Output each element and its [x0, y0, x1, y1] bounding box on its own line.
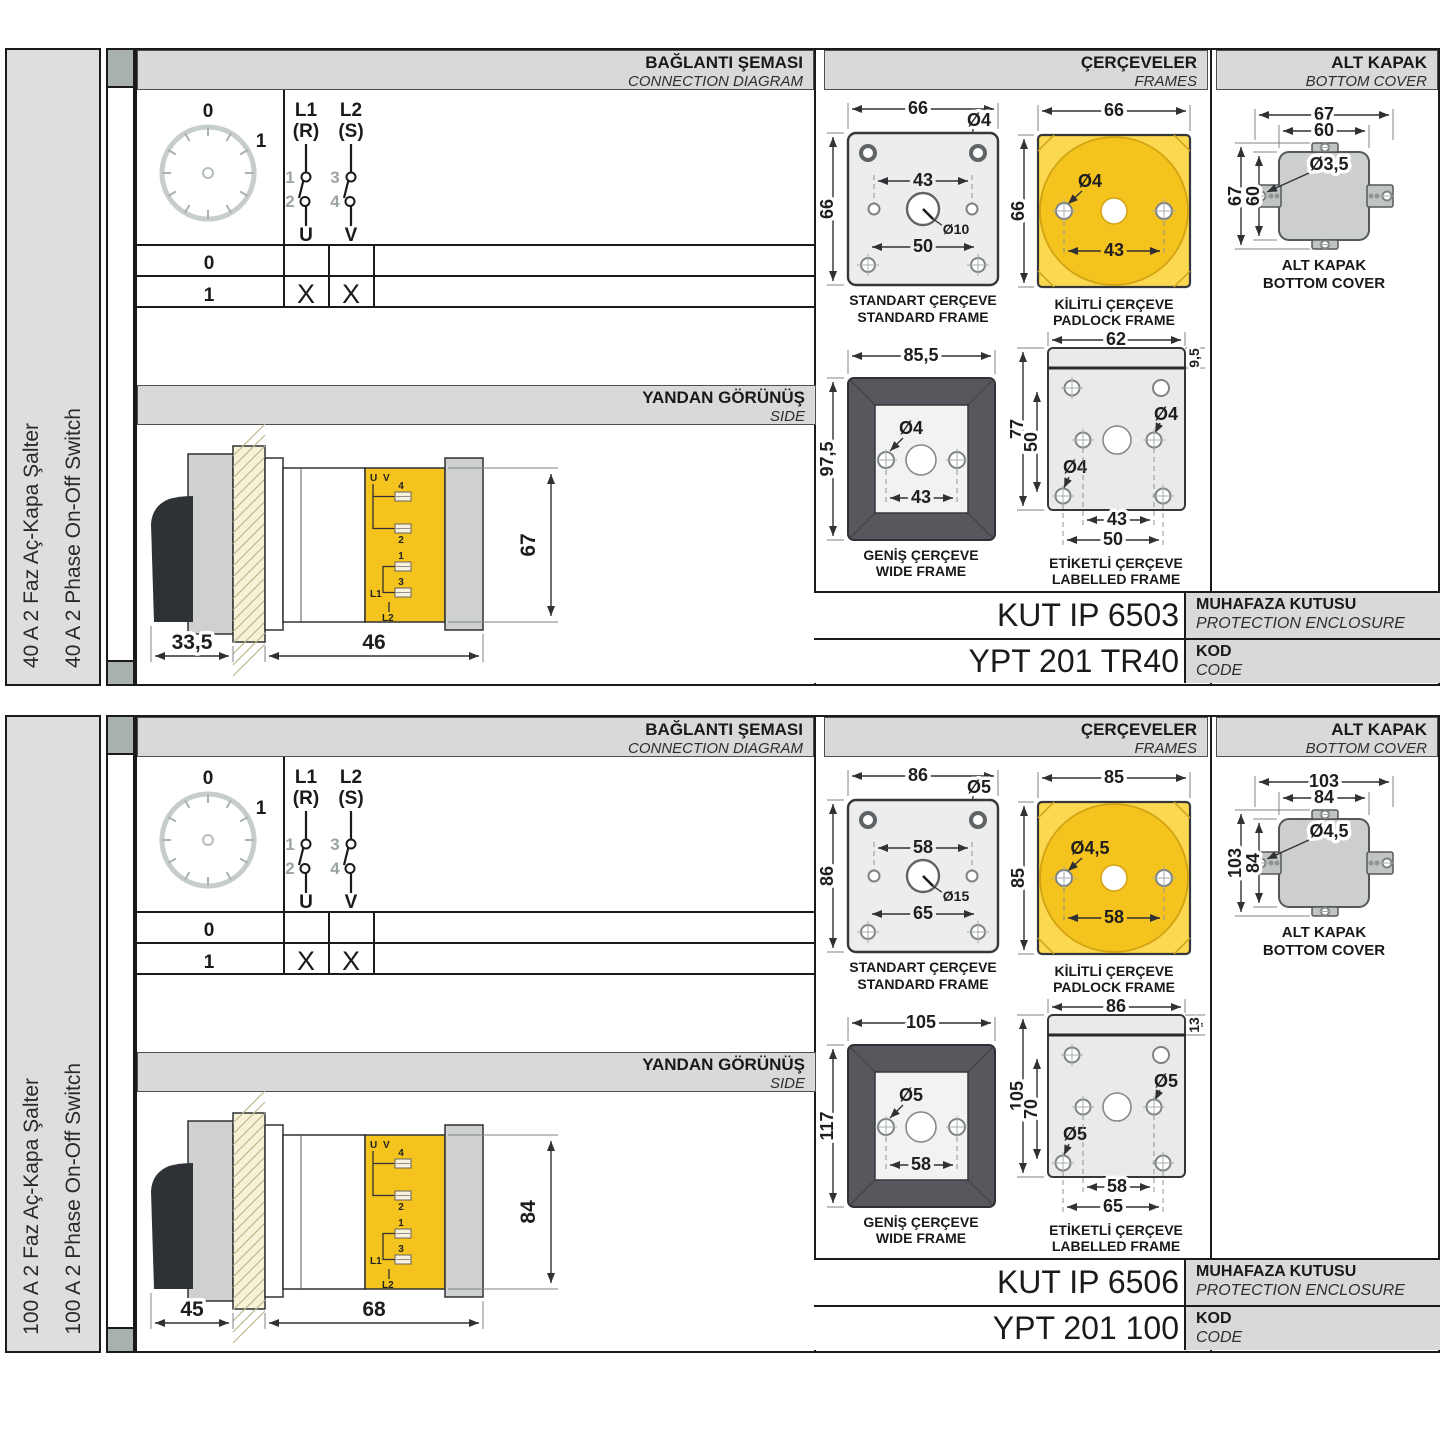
- std-height: 66: [817, 199, 837, 219]
- pad-caption-en: PADLOCK FRAME: [1053, 979, 1175, 995]
- dial-position-1: 1: [256, 798, 267, 819]
- wide-spacing: 58: [911, 1154, 931, 1174]
- enclosure-label: MUHAFAZA KUTUSU PROTECTION ENCLOSURE: [1184, 1260, 1440, 1305]
- wide-width: 105: [906, 1012, 936, 1032]
- terminal-u-label: U: [299, 892, 313, 913]
- switch-handle: [151, 496, 193, 622]
- dial-position-1: 1: [256, 131, 267, 152]
- dim-front-depth: 33,5: [172, 631, 213, 654]
- cover-inner-w: 84: [1314, 787, 1334, 807]
- product-code: YPT 201 TR40: [814, 640, 1184, 683]
- code-label-tr: KOD: [1196, 642, 1440, 661]
- header-connection-en: CONNECTION DIAGRAM: [138, 740, 803, 757]
- sv-l1: L1: [370, 1256, 382, 1267]
- sv-t2: 2: [398, 535, 404, 546]
- labelled-frame-drawing: 86 13 Ø5 Ø5 105: [1013, 997, 1209, 1255]
- contact-1-label: 1: [285, 168, 294, 187]
- pole1-line-label: L1: [295, 100, 318, 121]
- terminal-u-label: U: [299, 225, 313, 246]
- cover-dims-top: 67 60: [1255, 104, 1393, 148]
- lab-width: 86: [1106, 996, 1126, 1016]
- std-hole: Ø5: [967, 777, 991, 797]
- product-code: YPT 201 100: [814, 1307, 1184, 1350]
- wide-caption-tr: GENİŞ ÇERÇEVE: [863, 547, 978, 563]
- side-view-drawing: U V 4 2 1 3 L1 L2 84: [143, 1103, 593, 1343]
- table-x-v: X: [342, 279, 360, 309]
- product-section-1: 40 A 2 Faz Aç-Kapa Şalter 40 A 2 Phase O…: [0, 48, 1445, 686]
- product-code-label: KOD CODE: [1184, 640, 1440, 683]
- lab-lower-spacing: 65: [1103, 1196, 1123, 1216]
- lab-caption-en: LABELLED FRAME: [1052, 1238, 1180, 1254]
- table-x-u: X: [297, 279, 315, 309]
- product-name-turkish: 40 A 2 Faz Aç-Kapa Şalter: [20, 423, 44, 668]
- contact-2-label: 2: [285, 859, 294, 878]
- lab-lower-spacing: 50: [1103, 529, 1123, 549]
- pole2-phase-label: (S): [338, 788, 363, 809]
- table-x-u: X: [297, 946, 315, 976]
- pad-hole: Ø4: [1078, 171, 1102, 191]
- std-shaft: Ø10: [943, 221, 970, 237]
- product-name-english: 40 A 2 Phase On-Off Switch: [62, 408, 86, 668]
- wide-dims-top: 85,5: [848, 345, 995, 374]
- connection-diagram: 0 1 L1 (R) 1 2 U L2 (S): [135, 90, 816, 308]
- dim-rear-depth: 46: [362, 631, 385, 654]
- wide-spacing: 43: [911, 487, 931, 507]
- lab-hole-top: Ø5: [1154, 1071, 1178, 1091]
- header-connection-tr: BAĞLANTI ŞEMASI: [138, 53, 803, 73]
- sv-t4: 4: [398, 1148, 404, 1159]
- sv-l2: L2: [382, 1280, 394, 1291]
- padlock-dims-top: 85: [1038, 767, 1190, 798]
- rotary-dial: 0 1: [162, 101, 267, 219]
- wide-hole: Ø4: [899, 418, 923, 438]
- sv-u: U: [370, 473, 377, 484]
- lab-caption-en: LABELLED FRAME: [1052, 571, 1180, 587]
- product-code-label: KOD CODE: [1184, 1307, 1440, 1350]
- datasheet-panel: BAĞLANTI ŞEMASI CONNECTION DIAGRAM ÇERÇE…: [135, 48, 1440, 686]
- cover-outer-h: 67: [1225, 186, 1245, 206]
- std-spacing: 43: [913, 170, 933, 190]
- contact-4-label: 4: [330, 859, 340, 878]
- enclosure-row: KUT IP 6503 MUHAFAZA KUTUSU PROTECTION E…: [814, 591, 1440, 638]
- spine-cap-bottom: [108, 660, 133, 684]
- product-name-sidebar: 100 A 2 Faz Aç-Kapa Şalter 100 A 2 Phase…: [5, 715, 101, 1353]
- lab-width: 62: [1106, 329, 1126, 349]
- pole-1-symbol: L1 (R) 1 2 U: [285, 767, 319, 913]
- std-caption-en: STANDARD FRAME: [857, 309, 988, 325]
- header-bottom-cover: ALT KAPAK BOTTOM COVER: [1216, 717, 1438, 757]
- header-frames: ÇERÇEVELER FRAMES: [824, 50, 1208, 90]
- lab-hole-top: Ø4: [1154, 404, 1178, 424]
- std-shaft: Ø15: [943, 888, 970, 904]
- bottom-cover-drawing: 103 84 Ø4,5: [1215, 771, 1440, 961]
- header-cover-en: BOTTOM COVER: [1217, 73, 1427, 90]
- bottom-cover-drawing: 67 60 Ø3,5: [1215, 104, 1440, 294]
- pad-hole: Ø4,5: [1070, 838, 1109, 858]
- switch-table-values: 0 1 X X: [204, 253, 360, 309]
- side-view-tr: YANDAN GÖRÜNÜŞ: [138, 1055, 805, 1075]
- wide-height: 97,5: [817, 441, 837, 476]
- header-cover-tr: ALT KAPAK: [1217, 720, 1427, 740]
- header-connection-tr: BAĞLANTI ŞEMASI: [138, 720, 803, 740]
- side-view-drawing: U V 4 2 1 3 L1 L2 67: [143, 436, 593, 676]
- terminal-v-label: V: [345, 892, 358, 913]
- wide-height: 117: [817, 1111, 837, 1140]
- pole-2-symbol: L2 (S) 3 4 V: [330, 100, 363, 246]
- header-connection-diagram: BAĞLANTI ŞEMASI CONNECTION DIAGRAM: [137, 717, 814, 757]
- padlock-frame-drawing: 85 Ø4,5 58 85 KİLİTLİ ÇERÇEVE: [1014, 762, 1204, 994]
- header-frames-en: FRAMES: [825, 73, 1197, 90]
- pole-1-symbol: L1 (R) 1 2 U: [285, 100, 319, 246]
- header-frames: ÇERÇEVELER FRAMES: [824, 717, 1208, 757]
- cover-hole: Ø3,5: [1309, 154, 1348, 174]
- enclosure-row: KUT IP 6506 MUHAFAZA KUTUSU PROTECTION E…: [814, 1258, 1440, 1305]
- sv-l2: L2: [382, 613, 394, 624]
- dial-position-0: 0: [203, 101, 214, 122]
- cover-caption-en: BOTTOM COVER: [1263, 942, 1385, 959]
- std-lower-spacing: 50: [913, 236, 933, 256]
- lab-inner-height: 50: [1021, 432, 1041, 452]
- rotary-dial: 0 1: [162, 768, 267, 886]
- sv-l1: L1: [370, 589, 382, 600]
- cover-inner-h: 60: [1243, 186, 1263, 206]
- spine-cap-top: [108, 50, 133, 88]
- header-cover-en: BOTTOM COVER: [1217, 740, 1427, 757]
- sv-t2: 2: [398, 1202, 404, 1213]
- wide-caption-tr: GENİŞ ÇERÇEVE: [863, 1214, 978, 1230]
- product-section-2: 100 A 2 Faz Aç-Kapa Şalter 100 A 2 Phase…: [0, 715, 1445, 1353]
- pad-caption-en: PADLOCK FRAME: [1053, 312, 1175, 328]
- enclosure-label-tr: MUHAFAZA KUTUSU: [1196, 1262, 1440, 1281]
- dim-front-depth: 45: [180, 1298, 204, 1321]
- dim-height: 84: [517, 1200, 540, 1224]
- side-view-en: SIDE: [138, 408, 805, 425]
- header-connection-diagram: BAĞLANTI ŞEMASI CONNECTION DIAGRAM: [137, 50, 814, 90]
- std-spacing: 58: [913, 837, 933, 857]
- enclosure-code: KUT IP 6506: [814, 1260, 1184, 1305]
- header-cover-tr: ALT KAPAK: [1217, 53, 1427, 73]
- contact-4-label: 4: [330, 192, 340, 211]
- pad-caption-tr: KİLİTLİ ÇERÇEVE: [1054, 963, 1173, 979]
- std-caption-tr: STANDART ÇERÇEVE: [849, 959, 997, 975]
- enclosure-label-en: PROTECTION ENCLOSURE: [1196, 614, 1440, 633]
- wide-caption-en: WIDE FRAME: [876, 1230, 966, 1246]
- lab-dims-left: 105 70: [1007, 1015, 1044, 1177]
- cover-caption-tr: ALT KAPAK: [1282, 924, 1367, 941]
- pad-caption-tr: KİLİTLİ ÇERÇEVE: [1054, 296, 1173, 312]
- contact-3-label: 3: [330, 168, 339, 187]
- table-row-1: 1: [204, 285, 215, 306]
- header-frames-tr: ÇERÇEVELER: [825, 720, 1197, 740]
- wide-width: 85,5: [903, 345, 938, 365]
- datasheet-panel: BAĞLANTI ŞEMASI CONNECTION DIAGRAM ÇERÇE…: [135, 715, 1440, 1353]
- enclosure-label-tr: MUHAFAZA KUTUSU: [1196, 595, 1440, 614]
- std-lower-spacing: 65: [913, 903, 933, 923]
- product-name-sidebar: 40 A 2 Faz Aç-Kapa Şalter 40 A 2 Phase O…: [5, 48, 101, 686]
- pole2-line-label: L2: [340, 767, 362, 788]
- std-caption-en: STANDARD FRAME: [857, 976, 988, 992]
- header-side-view: YANDAN GÖRÜNÜŞ SIDE: [137, 385, 816, 425]
- wide-caption-en: WIDE FRAME: [876, 563, 966, 579]
- cover-hole: Ø4,5: [1309, 821, 1348, 841]
- wide-frame-drawing: 105 Ø5 58 117 GENİŞ ÇERÇEVE: [823, 1015, 1015, 1247]
- switch-table-values: 0 1 X X: [204, 920, 360, 976]
- product-code-row: YPT 201 100 KOD CODE: [814, 1305, 1440, 1350]
- table-row-0: 0: [204, 920, 215, 941]
- pole1-line-label: L1: [295, 767, 318, 788]
- header-frames-en: FRAMES: [825, 740, 1197, 757]
- code-label-en: CODE: [1196, 661, 1440, 680]
- connection-diagram: 0 1 L1 (R) 1 2 U L2 (S): [135, 757, 816, 975]
- product-name-english: 100 A 2 Phase On-Off Switch: [62, 1063, 86, 1335]
- lab-dims-left: 77 50: [1007, 348, 1044, 510]
- sv-v: V: [383, 1140, 390, 1151]
- lab-caption-tr: ETİKETLİ ÇERÇEVE: [1049, 1222, 1183, 1238]
- std-width: 86: [908, 765, 928, 785]
- pad-height: 85: [1008, 868, 1028, 888]
- product-code-row: YPT 201 TR40 KOD CODE: [814, 638, 1440, 683]
- pole2-line-label: L2: [340, 100, 362, 121]
- code-label-tr: KOD: [1196, 1309, 1440, 1328]
- header-bottom-cover: ALT KAPAK BOTTOM COVER: [1216, 50, 1438, 90]
- sv-t4: 4: [398, 481, 404, 492]
- dial-position-0: 0: [203, 768, 214, 789]
- cover-caption-tr: ALT KAPAK: [1282, 257, 1367, 274]
- table-row-1: 1: [204, 952, 215, 973]
- dim-rear-depth: 68: [362, 1298, 386, 1321]
- labelled-frame-drawing: 62 9,5 Ø4 Ø4 77: [1013, 330, 1209, 588]
- code-label-en: CODE: [1196, 1328, 1440, 1347]
- spine-cap-top: [108, 717, 133, 755]
- table-row-0: 0: [204, 253, 215, 274]
- standard-frame-drawing: 86 Ø5 58 Ø15 65 86: [823, 762, 1015, 994]
- pole1-phase-label: (R): [293, 121, 319, 142]
- pad-width: 66: [1104, 100, 1124, 120]
- cover-dims-top: 103 84: [1255, 771, 1393, 815]
- pad-spacing: 43: [1104, 240, 1124, 260]
- binder-spine: [106, 48, 135, 686]
- cover-caption-en: BOTTOM COVER: [1263, 275, 1385, 292]
- wide-dims-left: 117: [817, 1045, 844, 1207]
- terminal-v-label: V: [345, 225, 358, 246]
- wide-dims-top: 105: [848, 1012, 995, 1041]
- binder-spine: [106, 715, 135, 1353]
- enclosure-label: MUHAFAZA KUTUSU PROTECTION ENCLOSURE: [1184, 593, 1440, 638]
- pad-width: 85: [1104, 767, 1124, 787]
- pole2-phase-label: (S): [338, 121, 363, 142]
- header-frames-tr: ÇERÇEVELER: [825, 53, 1197, 73]
- enclosure-label-en: PROTECTION ENCLOSURE: [1196, 1281, 1440, 1300]
- pole1-phase-label: (R): [293, 788, 319, 809]
- sv-v: V: [383, 473, 390, 484]
- padlock-dims-top: 66: [1038, 100, 1190, 131]
- wide-dims-left: 97,5: [817, 378, 844, 540]
- pad-spacing: 58: [1104, 907, 1124, 927]
- contact-1-label: 1: [285, 835, 294, 854]
- lab-spacing: 43: [1107, 509, 1127, 529]
- sv-t3: 3: [398, 1244, 404, 1255]
- padlock-frame-drawing: 66 Ø4 43 66 KİLİTLİ ÇERÇEVE: [1014, 95, 1204, 327]
- wide-hole: Ø5: [899, 1085, 923, 1105]
- sv-t1: 1: [398, 551, 404, 562]
- standard-frame-dims-left: 66: [817, 133, 844, 285]
- cover-outer-h: 103: [1225, 848, 1245, 878]
- lab-strip: 13: [1186, 1017, 1202, 1033]
- sv-t3: 3: [398, 577, 404, 588]
- pole-2-symbol: L2 (S) 3 4 V: [330, 767, 363, 913]
- lab-caption-tr: ETİKETLİ ÇERÇEVE: [1049, 555, 1183, 571]
- lab-inner-height: 70: [1021, 1099, 1041, 1119]
- std-hole: Ø4: [967, 110, 991, 130]
- product-name-turkish: 100 A 2 Faz Aç-Kapa Şalter: [20, 1078, 44, 1335]
- switch-handle: [151, 1163, 193, 1289]
- pad-height: 66: [1008, 201, 1028, 221]
- wide-frame-drawing: 85,5 Ø4 43 97,5 GENİŞ ÇERÇEVE: [823, 348, 1015, 580]
- lab-strip: 9,5: [1186, 348, 1202, 368]
- std-width: 66: [908, 98, 928, 118]
- contact-2-label: 2: [285, 192, 294, 211]
- std-height: 86: [817, 866, 837, 886]
- spine-cap-bottom: [108, 1327, 133, 1351]
- table-x-v: X: [342, 946, 360, 976]
- standard-frame-drawing: 66 Ø4 43 Ø10 50 66: [823, 95, 1015, 327]
- header-connection-en: CONNECTION DIAGRAM: [138, 73, 803, 90]
- enclosure-code: KUT IP 6503: [814, 593, 1184, 638]
- cover-inner-w: 60: [1314, 120, 1334, 140]
- side-view-en: SIDE: [138, 1075, 805, 1092]
- std-caption-tr: STANDART ÇERÇEVE: [849, 292, 997, 308]
- standard-frame-dims-left: 86: [817, 800, 844, 952]
- side-view-tr: YANDAN GÖRÜNÜŞ: [138, 388, 805, 408]
- dim-height: 67: [517, 533, 540, 556]
- contact-3-label: 3: [330, 835, 339, 854]
- cover-inner-h: 84: [1243, 853, 1263, 873]
- sv-t1: 1: [398, 1218, 404, 1229]
- sv-u: U: [370, 1140, 377, 1151]
- header-side-view: YANDAN GÖRÜNÜŞ SIDE: [137, 1052, 816, 1092]
- lab-spacing: 58: [1107, 1176, 1127, 1196]
